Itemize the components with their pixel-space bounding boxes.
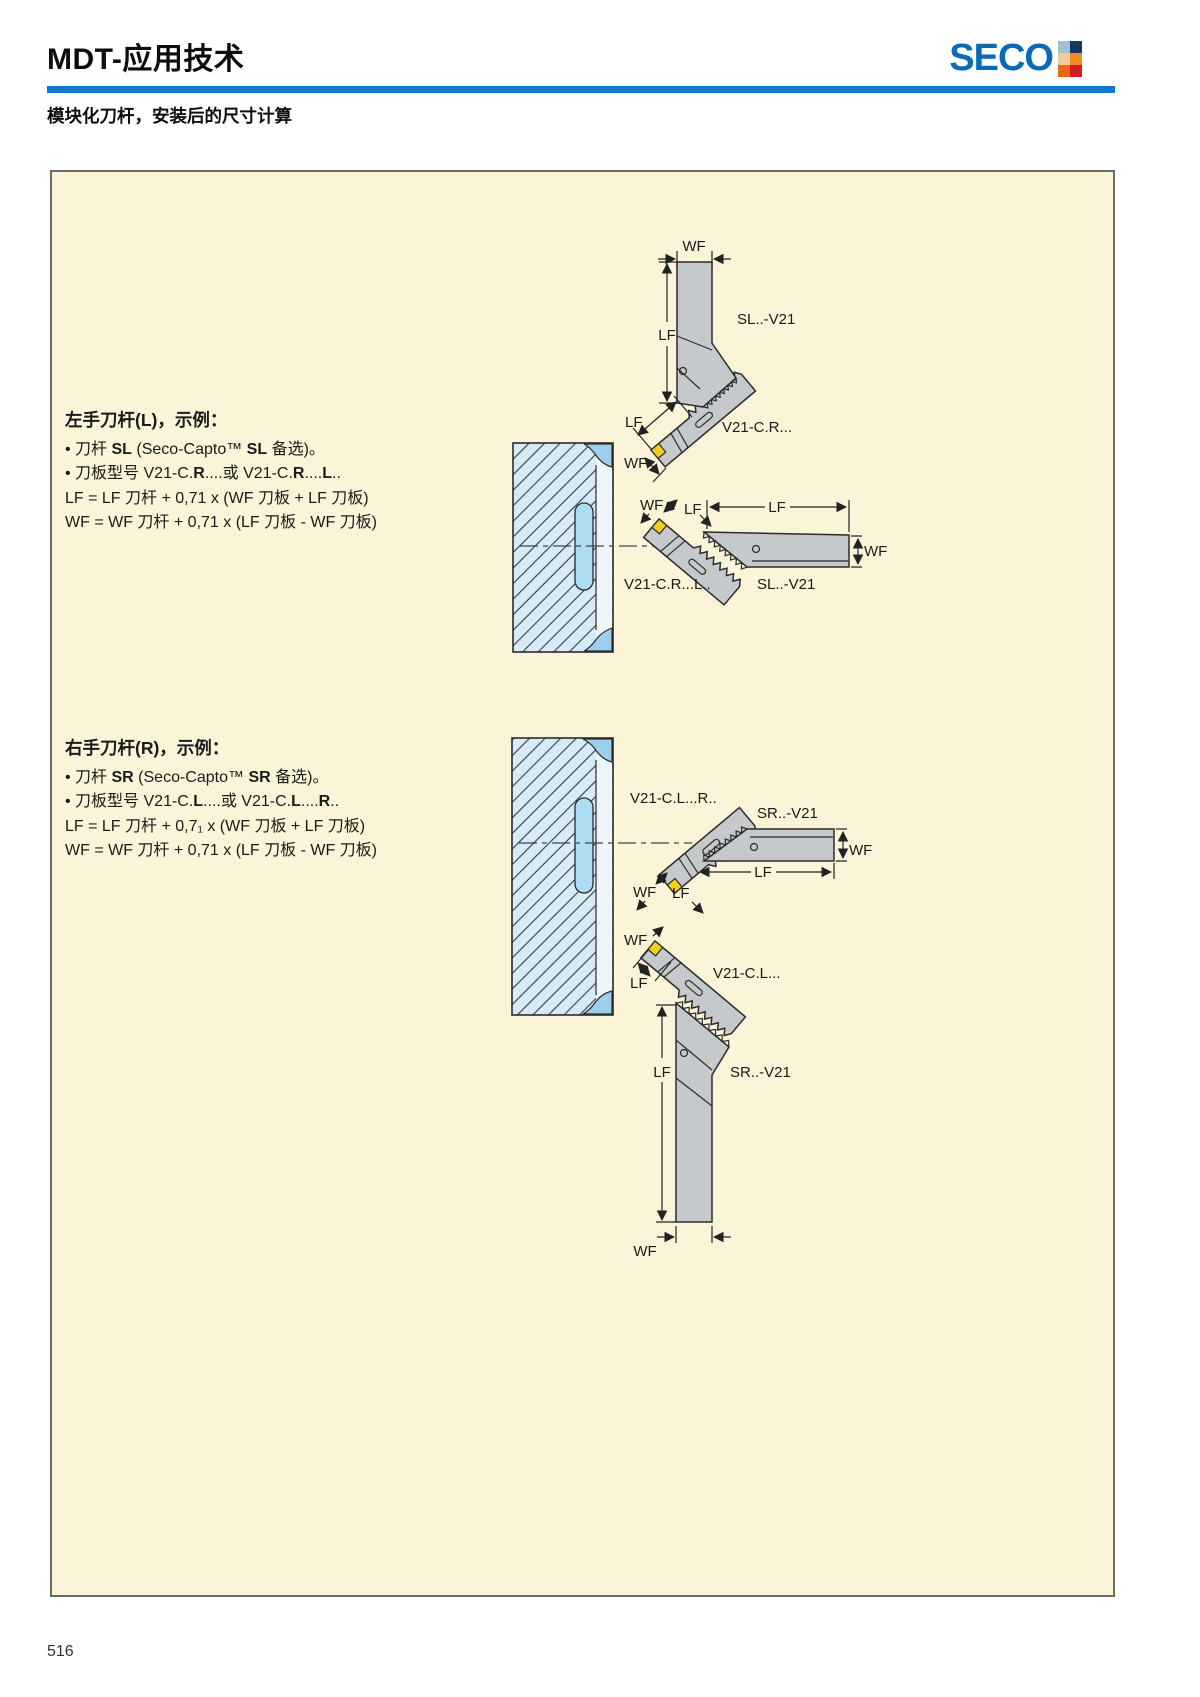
dim-label-lf: LF bbox=[768, 499, 786, 516]
technical-diagram: WF LF LF WF SL..-V21 V21-C.R... WF LF LF… bbox=[0, 0, 1200, 1697]
workpiece-upper bbox=[513, 443, 613, 652]
dim-label-lf: LF bbox=[754, 864, 772, 881]
dim-label-lf: LF bbox=[658, 327, 676, 344]
holder-sr-vertical bbox=[676, 1002, 729, 1222]
part-label-blade-clr: V21-C.L...R.. bbox=[630, 790, 717, 807]
part-label-blade-cr: V21-C.R... bbox=[722, 419, 792, 436]
part-label-sl-holder: SL..-V21 bbox=[757, 576, 815, 593]
dim-label-lf: LF bbox=[625, 414, 643, 431]
part-label-blade-cl: V21-C.L... bbox=[713, 965, 781, 982]
part-label-blade-crl: V21-C.R...L.. bbox=[624, 576, 711, 593]
dim-label-wf: WF bbox=[624, 455, 647, 472]
dim-label-lf: LF bbox=[630, 975, 648, 992]
part-label-sr-holder: SR..-V21 bbox=[730, 1064, 791, 1081]
part-label-sl-holder: SL..-V21 bbox=[737, 311, 795, 328]
dim-label-wf: WF bbox=[640, 497, 663, 514]
dim-label-wf: WF bbox=[624, 932, 647, 949]
dim-label-wf: WF bbox=[682, 238, 705, 255]
dim-label-wf: WF bbox=[849, 842, 872, 859]
workpiece-lower bbox=[512, 738, 613, 1015]
dim-label-lf: LF bbox=[684, 501, 702, 518]
catalog-page: { "header": { "title": "MDT-应用技术", "logo… bbox=[0, 0, 1200, 1697]
dim-label-lf: LF bbox=[653, 1064, 671, 1081]
dim-label-lf: LF bbox=[672, 885, 690, 902]
part-label-sr-holder: SR..-V21 bbox=[757, 805, 818, 822]
holder-sl-horizontal bbox=[704, 532, 850, 569]
dim-label-wf: WF bbox=[633, 1243, 656, 1260]
holder-sl-vertical bbox=[677, 262, 737, 408]
dim-label-wf: WF bbox=[633, 884, 656, 901]
groove-lower bbox=[575, 798, 593, 893]
dim-label-wf: WF bbox=[864, 543, 887, 560]
